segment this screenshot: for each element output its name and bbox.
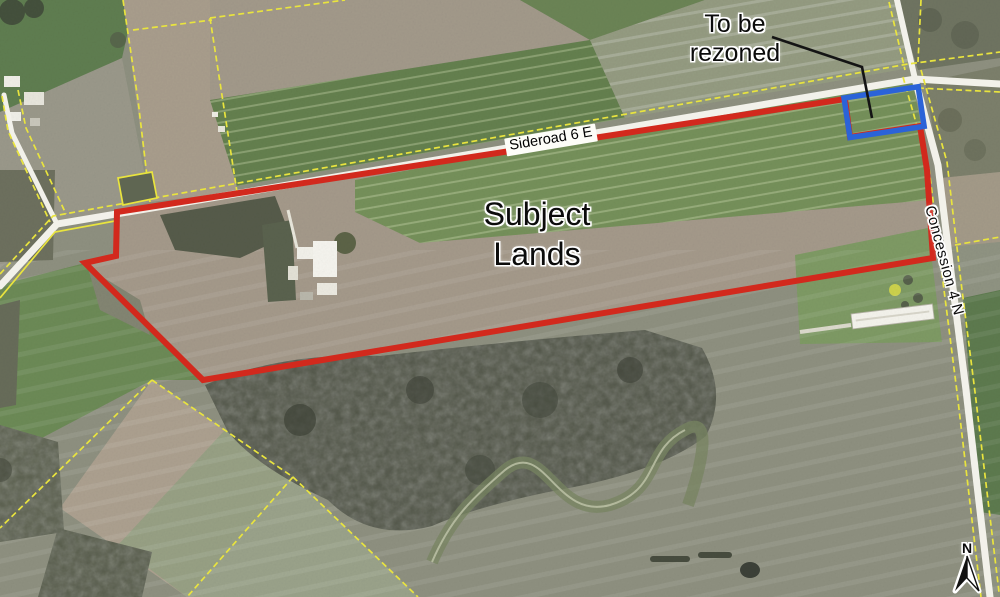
- map-canvas: [0, 0, 1000, 597]
- subject-lands-line1: Subject: [437, 194, 637, 234]
- aerial-parcel-map: To be rezoned Subject Lands Sideroad 6 E…: [0, 0, 1000, 597]
- north-arrow-label: N: [955, 540, 979, 556]
- rezone-note-line2: rezoned: [650, 39, 820, 68]
- subject-lands-line2: Lands: [437, 234, 637, 274]
- subject-lands-label: Subject Lands: [437, 194, 637, 274]
- rezone-note-line1: To be: [650, 10, 820, 39]
- rezone-note: To be rezoned: [650, 10, 820, 68]
